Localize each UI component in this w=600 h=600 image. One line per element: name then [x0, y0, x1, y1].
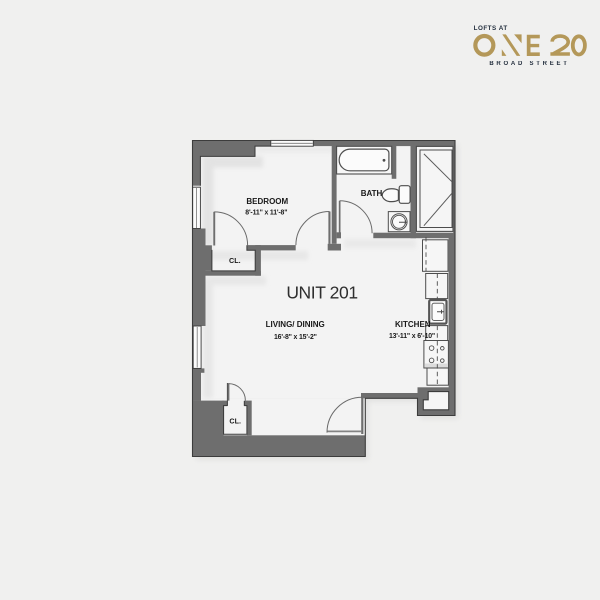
svg-text:BATH: BATH [361, 189, 383, 198]
svg-text:LOFTS AT: LOFTS AT [474, 25, 508, 32]
svg-text:BROAD STREET: BROAD STREET [489, 61, 569, 67]
svg-text:8'-11" x 11'-8": 8'-11" x 11'-8" [245, 210, 287, 217]
svg-text:BEDROOM: BEDROOM [246, 197, 288, 206]
svg-text:16'-8" x 15'-2": 16'-8" x 15'-2" [274, 334, 317, 341]
svg-text:CL.: CL. [229, 256, 241, 265]
svg-text:UNIT 201: UNIT 201 [286, 283, 357, 303]
svg-text:KITCHEN: KITCHEN [395, 320, 431, 329]
svg-text:13'-11" x 6'-10": 13'-11" x 6'-10" [389, 333, 435, 340]
svg-text:LIVING/ DINING: LIVING/ DINING [266, 320, 325, 329]
svg-text:CL.: CL. [229, 417, 241, 426]
